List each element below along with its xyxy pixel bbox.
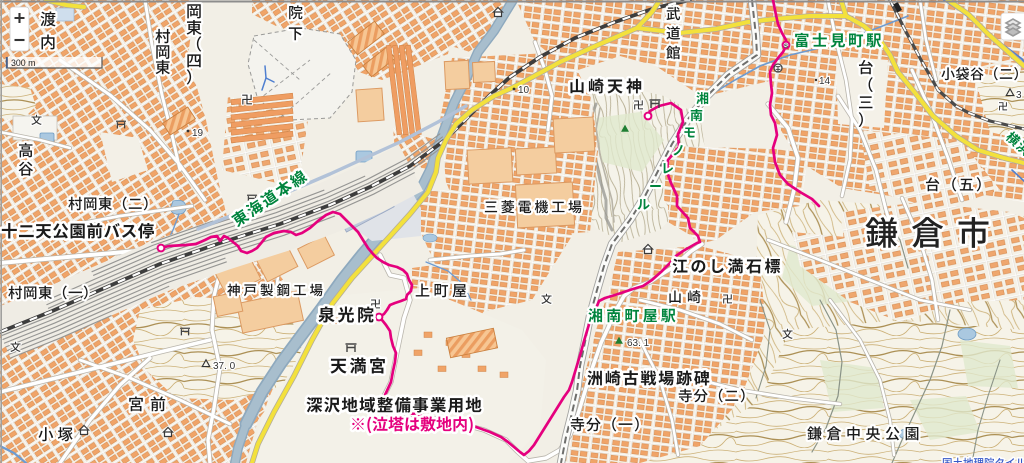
svg-text:3: 3 [1016, 90, 1022, 101]
svg-text:300 m: 300 m [11, 58, 35, 68]
svg-text:10: 10 [518, 85, 530, 96]
svg-text:37. 0: 37. 0 [213, 361, 236, 372]
svg-text:s: s [784, 41, 789, 50]
svg-text:19: 19 [192, 128, 204, 139]
svg-text:14: 14 [819, 76, 831, 87]
svg-text:63. 1: 63. 1 [627, 338, 650, 349]
